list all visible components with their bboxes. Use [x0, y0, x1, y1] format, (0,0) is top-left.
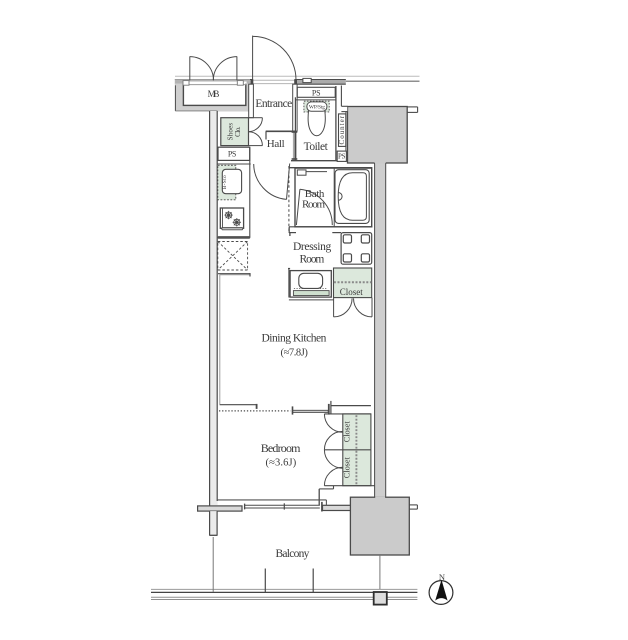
- svg-text:Room: Room: [302, 199, 325, 211]
- svg-text:PS: PS: [312, 88, 321, 97]
- svg-text:Dining Kitchen: Dining Kitchen: [261, 332, 326, 344]
- svg-text:WP/Stg: WP/Stg: [309, 105, 325, 111]
- svg-text:PS: PS: [338, 153, 346, 161]
- svg-text:Closet: Closet: [342, 457, 351, 479]
- svg-text:(≈3.6J): (≈3.6J): [266, 457, 297, 468]
- svg-text:Balcony: Balcony: [275, 548, 309, 560]
- svg-text:B-Sto: B-Sto: [222, 175, 228, 189]
- svg-text:Toilet: Toilet: [304, 141, 329, 153]
- svg-text:PS: PS: [228, 149, 237, 158]
- svg-text:Room: Room: [300, 254, 325, 266]
- svg-text:Clo.: Clo.: [234, 126, 242, 137]
- svg-text:Closet: Closet: [340, 287, 363, 297]
- svg-text:Bedroom: Bedroom: [261, 441, 301, 455]
- svg-text:MB: MB: [208, 89, 220, 99]
- svg-text:Counter: Counter: [338, 115, 346, 144]
- svg-text:Entrance: Entrance: [255, 98, 292, 110]
- svg-text:Dressing: Dressing: [293, 241, 331, 253]
- svg-text:N: N: [439, 572, 445, 582]
- svg-text:Hall: Hall: [267, 138, 285, 150]
- svg-text:(≈7.8J): (≈7.8J): [281, 347, 309, 358]
- svg-text:Closet: Closet: [342, 421, 351, 443]
